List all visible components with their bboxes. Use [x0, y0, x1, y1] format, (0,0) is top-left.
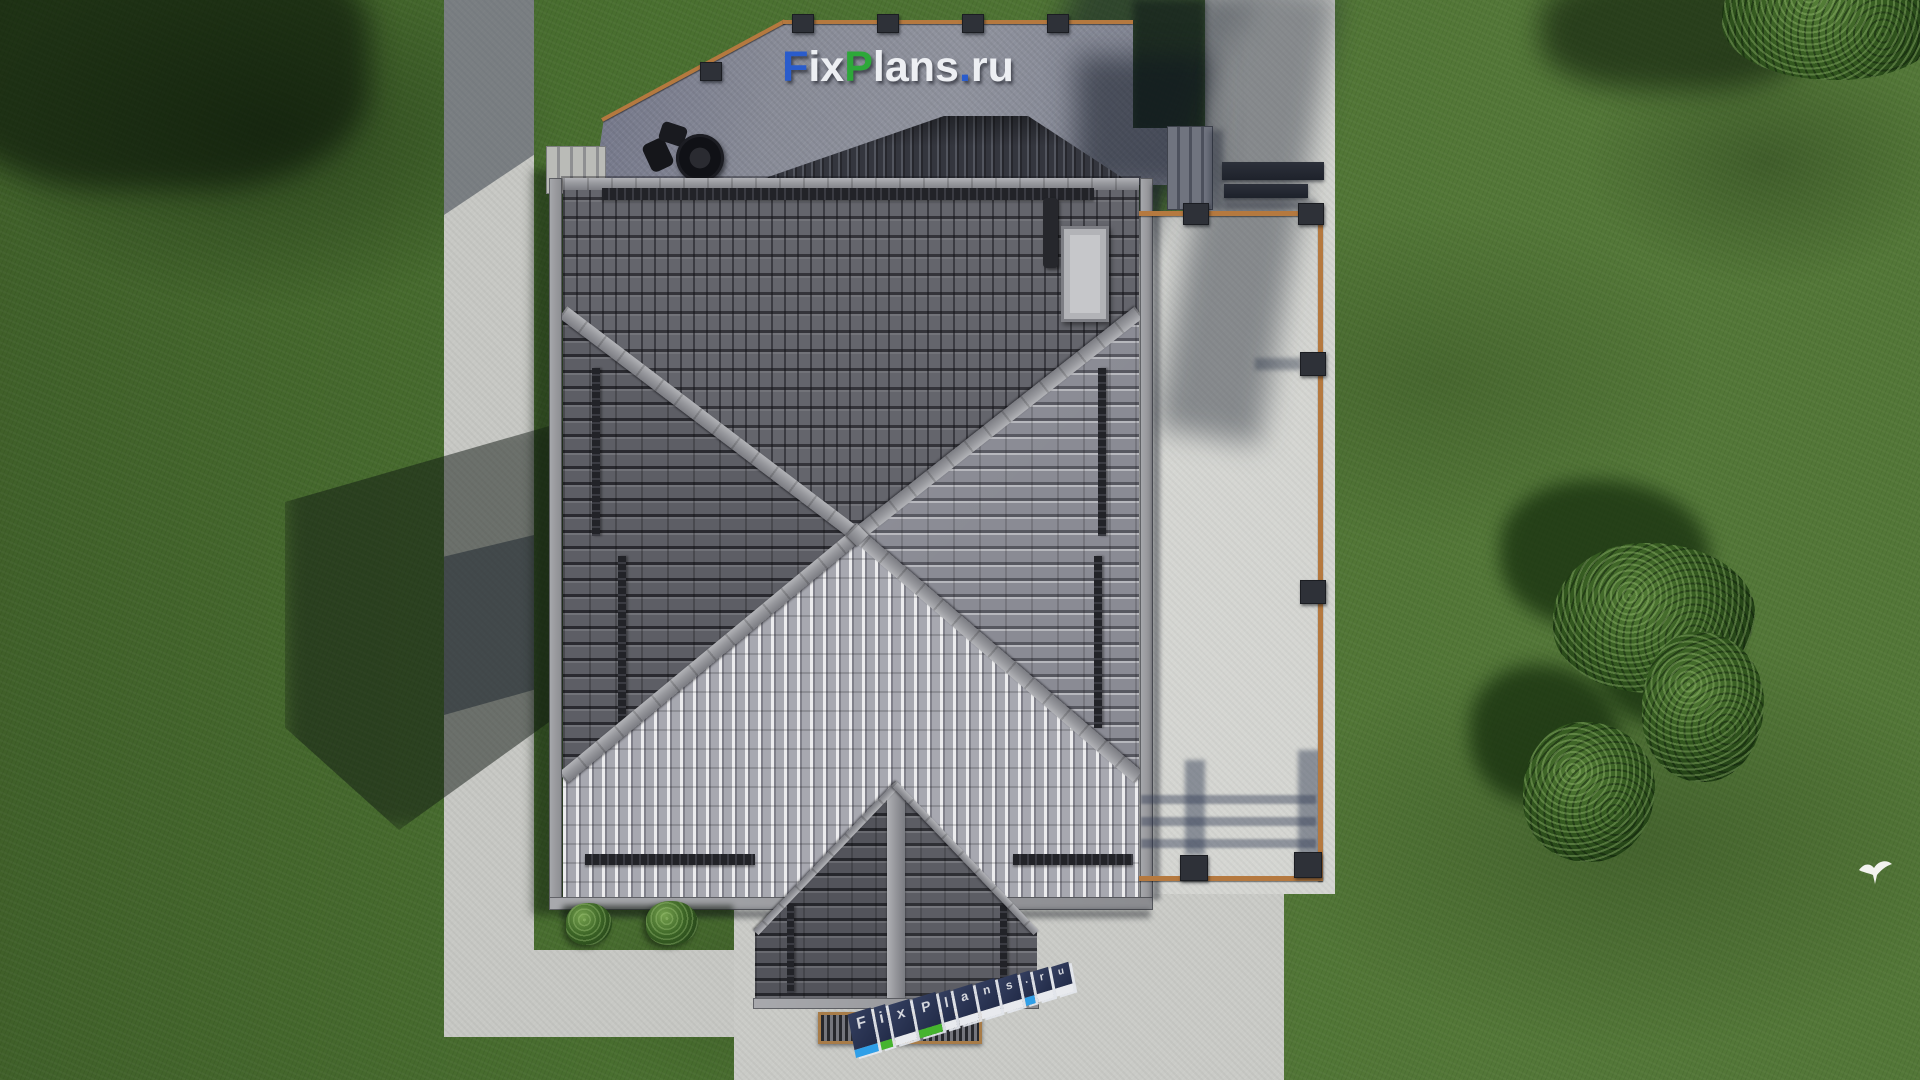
terrace-railing-post	[700, 62, 722, 81]
patio-railing-post	[1294, 852, 1322, 878]
tree	[1642, 632, 1764, 782]
railing-shadow-stripe	[1141, 817, 1316, 826]
porch-ridge	[887, 789, 905, 1005]
ground-sign-letter: a	[953, 984, 979, 1026]
watermark-segment: ru	[971, 43, 1014, 91]
railing-post-shadow	[1298, 750, 1320, 855]
snow-guard-east-upper	[1098, 368, 1106, 536]
railing-post-shadow	[1185, 760, 1205, 855]
garden-path-horizontal-leg	[444, 950, 736, 1037]
patio-railing-post	[1180, 855, 1208, 881]
patio-railing-post	[1300, 352, 1326, 376]
patio-railing-east	[1318, 211, 1323, 881]
chimney	[1061, 226, 1109, 322]
ground-sign-letter: n	[975, 978, 1001, 1019]
terrace-railing-post	[1047, 14, 1069, 33]
porch-snow-guard-left	[787, 905, 794, 993]
watermark-segment: .	[959, 43, 971, 91]
patio-railing-north	[1139, 211, 1323, 216]
patio-railing-post	[1300, 580, 1326, 604]
patio-table	[676, 134, 724, 182]
gutter-west	[549, 178, 562, 909]
ground-sign-letter: s	[998, 973, 1024, 1013]
snow-guard-north	[602, 188, 1094, 200]
snow-guard-east-lower	[1094, 556, 1102, 728]
terrace-railing-top	[783, 20, 1133, 24]
snow-guard-south-right	[1013, 854, 1133, 865]
terrace-railing-post	[962, 14, 984, 33]
terrace-railing-post	[877, 14, 899, 33]
aerial-render-scene: FixPlans.ru FixPla	[0, 0, 1920, 1080]
terrace-steps-east	[1167, 126, 1213, 210]
tree	[1523, 722, 1655, 862]
ground-sign-letter: r	[1033, 966, 1054, 1002]
watermark-segment: lans	[873, 43, 959, 91]
patio-railing-post	[1298, 203, 1324, 225]
patio-railing-post	[1183, 203, 1209, 225]
watermark-segment: P	[844, 43, 873, 91]
terrace-steps-east-shadow	[1209, 130, 1223, 210]
snow-guard-west-lower	[618, 556, 626, 728]
snow-guard-south-left	[585, 854, 755, 865]
terrace-railing-post	[792, 14, 814, 33]
patio-bench-beam	[1222, 162, 1324, 180]
snow-guard-west-upper	[592, 368, 600, 536]
watermark-segment: ix	[808, 43, 844, 91]
ground-sign-letter: u	[1051, 962, 1074, 997]
bird-silhouette	[1858, 858, 1894, 886]
eave-drop-shadow-east	[1152, 185, 1160, 900]
ground-sign-letter: P	[912, 992, 943, 1038]
patio-bench-beam	[1224, 184, 1308, 198]
railing-shadow-stripe	[1141, 795, 1316, 804]
tree-shadow-top-left	[0, 0, 370, 190]
railing-post-shadow	[1255, 358, 1301, 370]
watermark-segment: F	[782, 43, 808, 91]
watermark-logo: FixPlans.ru	[728, 45, 1068, 91]
railing-shadow-stripe	[1141, 839, 1316, 848]
roof-vent-pipe	[1043, 198, 1058, 268]
bird-icon	[1858, 858, 1894, 886]
